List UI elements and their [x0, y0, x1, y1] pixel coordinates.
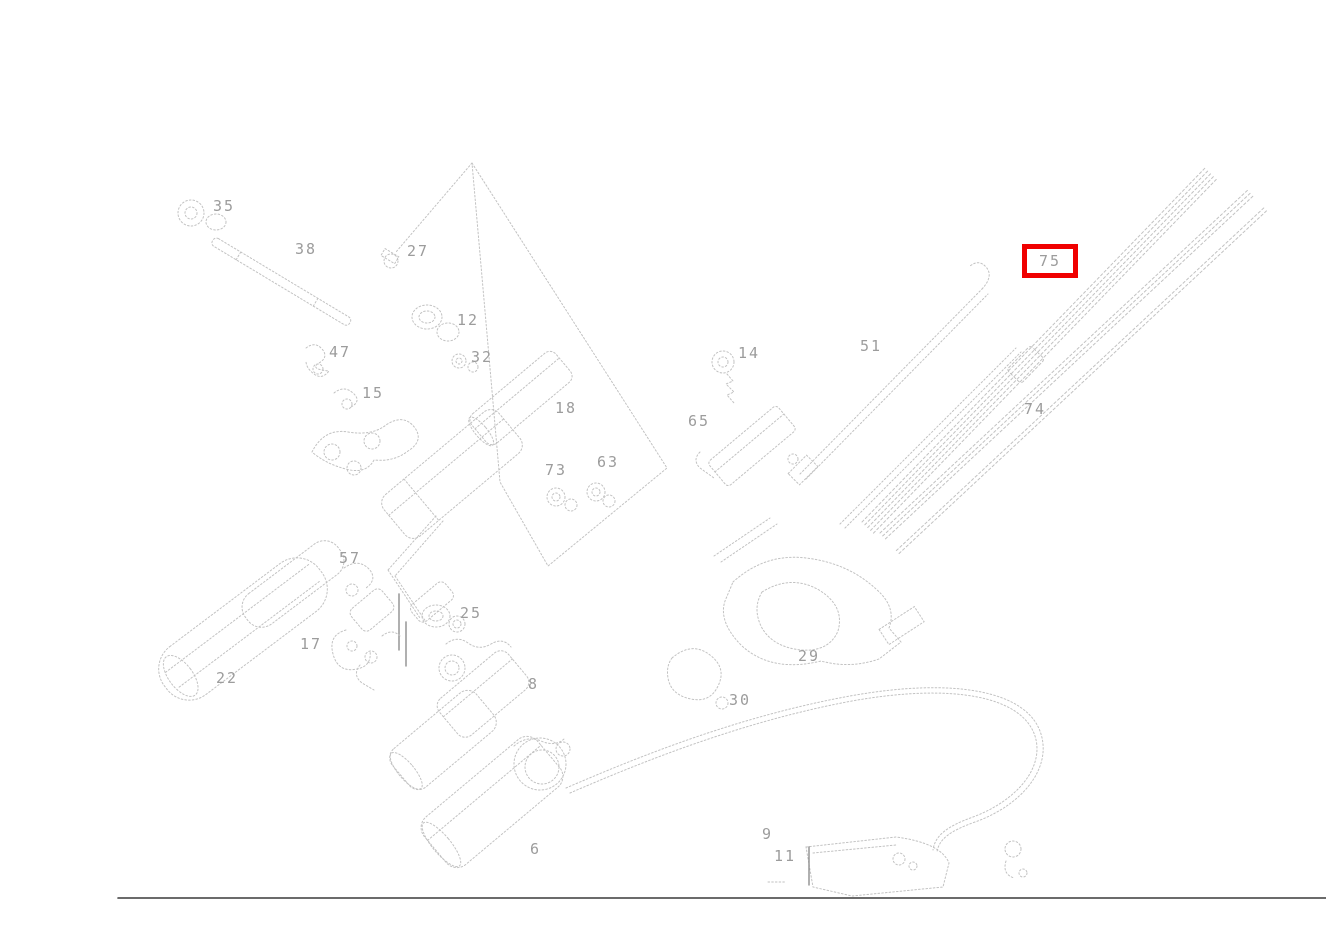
part-label-38[interactable]: 38	[295, 242, 317, 257]
part-label-65[interactable]: 65	[688, 414, 710, 429]
part-label-18[interactable]: 18	[555, 401, 577, 416]
part-label-47[interactable]: 47	[329, 345, 351, 360]
part-labels-layer: 3538271247321518146551757473635717222583…	[0, 0, 1326, 937]
part-label-25[interactable]: 25	[460, 606, 482, 621]
part-label-22[interactable]: 22	[216, 671, 238, 686]
part-label-14[interactable]: 14	[738, 346, 760, 361]
part-label-27[interactable]: 27	[407, 244, 429, 259]
part-label-30[interactable]: 30	[729, 693, 751, 708]
part-label-17[interactable]: 17	[300, 637, 322, 652]
part-label-12[interactable]: 12	[457, 313, 479, 328]
part-label-32[interactable]: 32	[471, 350, 493, 365]
part-label-8[interactable]: 8	[528, 677, 539, 692]
part-label-9[interactable]: 9	[762, 827, 773, 842]
selected-part-highlight[interactable]: 75	[1022, 244, 1078, 278]
part-label-6[interactable]: 6	[530, 842, 541, 857]
part-label-74[interactable]: 74	[1024, 402, 1046, 417]
part-label-73[interactable]: 73	[545, 463, 567, 478]
part-label-57[interactable]: 57	[339, 551, 361, 566]
part-label-51[interactable]: 51	[860, 339, 882, 354]
part-label-29[interactable]: 29	[798, 649, 820, 664]
part-label-15[interactable]: 15	[362, 386, 384, 401]
part-label-11[interactable]: 11	[774, 849, 796, 864]
part-label-63[interactable]: 63	[597, 455, 619, 470]
parts-diagram-page: 3538271247321518146551757473635717222583…	[0, 0, 1326, 937]
part-label-35[interactable]: 35	[213, 199, 235, 214]
